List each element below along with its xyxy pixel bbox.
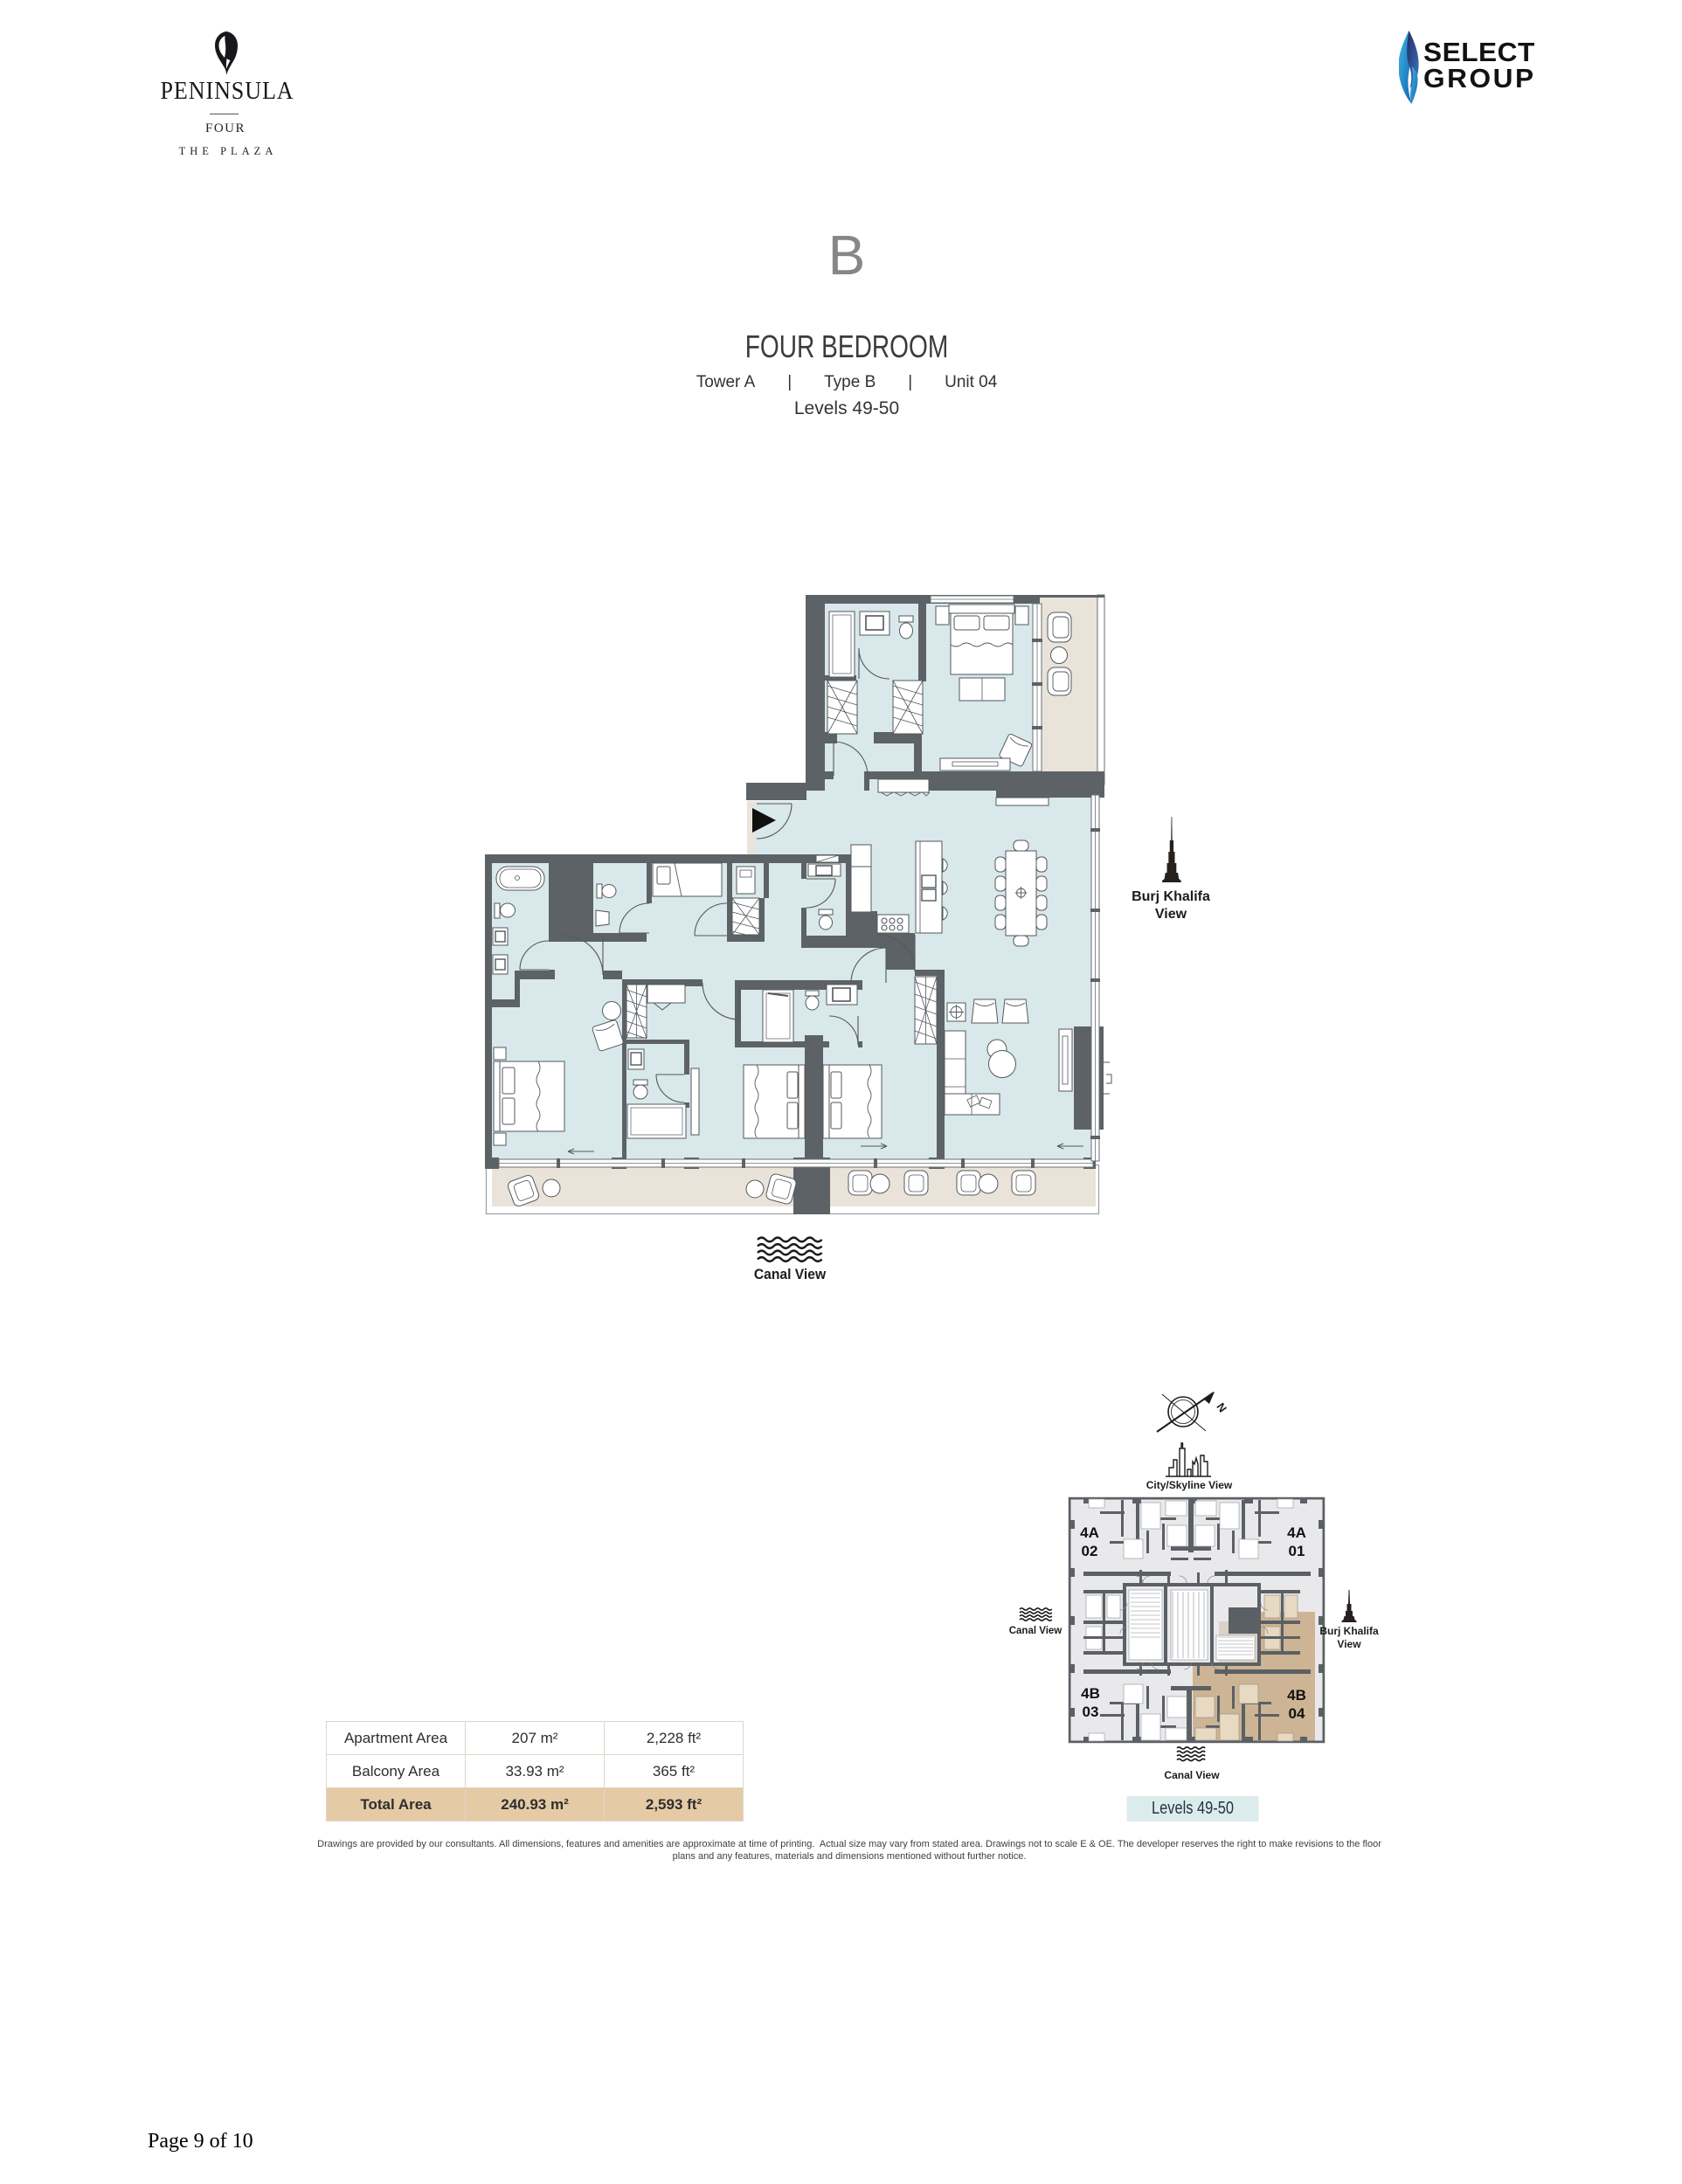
svg-text:Canal View: Canal View: [1009, 1626, 1062, 1636]
svg-text:4B: 4B: [1287, 1687, 1306, 1704]
svg-text:4A: 4A: [1080, 1524, 1099, 1541]
svg-text:03: 03: [1083, 1704, 1099, 1720]
svg-text:View: View: [1337, 1638, 1361, 1650]
svg-text:Canal View: Canal View: [1164, 1769, 1220, 1781]
svg-text:Burj Khalifa: Burj Khalifa: [1132, 889, 1210, 904]
svg-text:City/Skyline View: City/Skyline View: [1146, 1479, 1233, 1491]
svg-text:Burj Khalifa: Burj Khalifa: [1319, 1625, 1379, 1637]
svg-text:N: N: [1214, 1400, 1229, 1414]
svg-text:Canal View: Canal View: [754, 1266, 827, 1282]
svg-text:01: 01: [1289, 1543, 1305, 1559]
svg-text:View: View: [1155, 907, 1187, 922]
svg-text:4B: 4B: [1081, 1685, 1100, 1702]
svg-text:02: 02: [1082, 1543, 1098, 1559]
svg-text:04: 04: [1289, 1705, 1305, 1722]
svg-text:4A: 4A: [1287, 1524, 1306, 1541]
